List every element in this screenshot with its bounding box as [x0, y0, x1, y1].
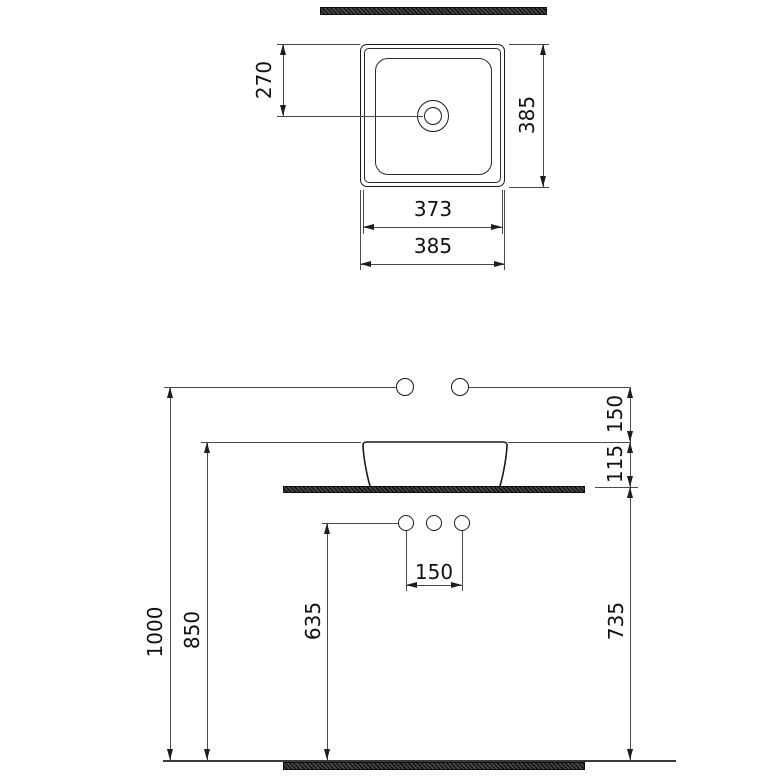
arrowhead-icon [360, 261, 371, 267]
dim-1000-label: 1000 [145, 607, 165, 658]
dim-line-385-right [543, 44, 544, 187]
dim-735-label: 735 [606, 602, 626, 640]
ext-line-270-top [277, 44, 360, 45]
ext-line-385b-right [504, 190, 505, 270]
dim-385-right-label: 385 [517, 96, 537, 134]
dim-line-385-bottom [360, 264, 505, 265]
arrowhead-icon [204, 442, 210, 453]
dim-850-label: 850 [182, 611, 202, 649]
basin-profile [354, 436, 516, 490]
tap-hole-circle [398, 515, 414, 531]
arrowhead-icon [627, 431, 633, 442]
arrowhead-icon [280, 44, 286, 55]
arrowhead-icon [324, 523, 330, 534]
faucet-hole-circle [396, 378, 414, 396]
tap-hole-circle [454, 515, 470, 531]
arrowhead-icon [167, 749, 173, 760]
ext-line-373-right [502, 190, 503, 234]
technical-drawing-canvas: 270 385 373 385 [0, 0, 776, 776]
dim-385-bottom-label: 385 [414, 236, 452, 256]
dim-line-850 [207, 442, 208, 760]
countertop-section-bar [283, 486, 585, 493]
arrowhead-icon [204, 749, 210, 760]
dim-115-label: 115 [605, 445, 625, 483]
arrowhead-icon [540, 44, 546, 55]
dim-373-label: 373 [414, 199, 452, 219]
arrowhead-icon [280, 105, 286, 116]
dim-line-373 [363, 227, 502, 228]
dim-line-735 [630, 487, 631, 760]
ref-line-top-right [469, 387, 631, 388]
ext-line-385r-bottom [509, 187, 549, 188]
arrowhead-icon [540, 176, 546, 187]
arrowhead-icon [627, 749, 633, 760]
arrowhead-icon [167, 387, 173, 398]
dim-150-holes-label: 150 [415, 562, 453, 582]
dim-line-1000 [170, 387, 171, 760]
floor-section-bar [283, 762, 585, 770]
arrowhead-icon [627, 476, 633, 487]
arrowhead-icon [627, 442, 633, 453]
arrowhead-icon [627, 487, 633, 498]
dim-635-label: 635 [303, 602, 323, 640]
arrowhead-icon [491, 224, 502, 230]
arrowhead-icon [627, 387, 633, 398]
leader-line-270-drain [277, 116, 423, 117]
dim-150-right-label: 150 [605, 395, 625, 433]
arrowhead-icon [324, 749, 330, 760]
rim-line-right [508, 442, 631, 443]
leader-line-holes [322, 523, 398, 524]
dim-line-635 [327, 523, 328, 760]
tap-hole-circle [426, 515, 442, 531]
wall-section-bar [320, 7, 547, 15]
faucet-hole-circle [451, 378, 469, 396]
ext-line-150h-right [462, 531, 463, 591]
arrowhead-icon [363, 224, 374, 230]
drain-inner-circle [424, 107, 442, 125]
ext-line-385b-left [360, 190, 361, 270]
arrowhead-icon [494, 261, 505, 267]
rim-line-left [201, 442, 361, 443]
dim-270-label: 270 [254, 61, 274, 99]
ref-line-top-left [164, 387, 396, 388]
